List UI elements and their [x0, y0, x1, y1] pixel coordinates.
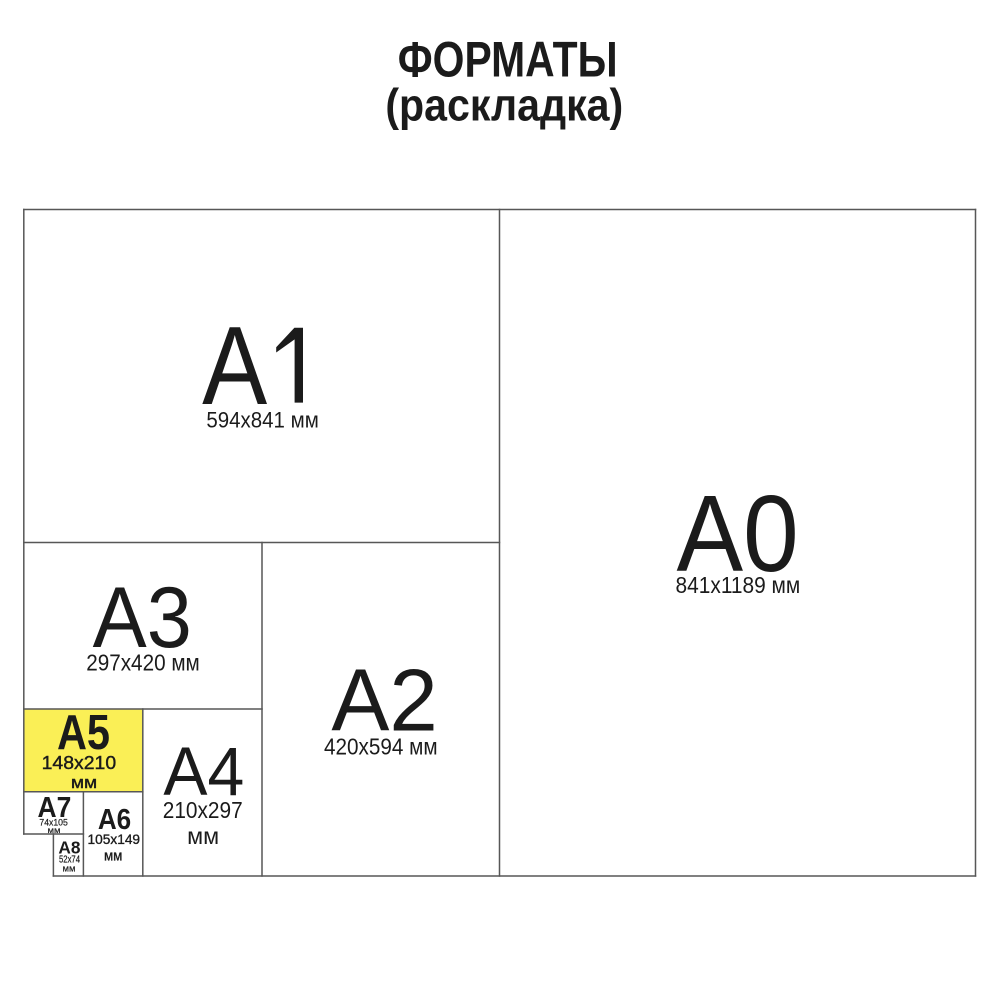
svg-text:(раскладка): (раскладка): [385, 79, 623, 130]
svg-text:210х297: 210х297: [163, 797, 243, 823]
svg-text:297х420 мм: 297х420 мм: [86, 650, 200, 676]
svg-text:594х841 мм: 594х841 мм: [206, 407, 318, 432]
svg-text:мм: мм: [187, 823, 219, 849]
svg-text:105х149: 105х149: [88, 832, 141, 847]
svg-text:841х1189 мм: 841х1189 мм: [676, 572, 801, 598]
svg-text:мм: мм: [71, 773, 97, 792]
svg-text:мм: мм: [104, 848, 123, 865]
svg-text:420х594 мм: 420х594 мм: [324, 734, 438, 760]
svg-text:мм: мм: [63, 863, 76, 873]
svg-text:148х210: 148х210: [42, 753, 117, 773]
